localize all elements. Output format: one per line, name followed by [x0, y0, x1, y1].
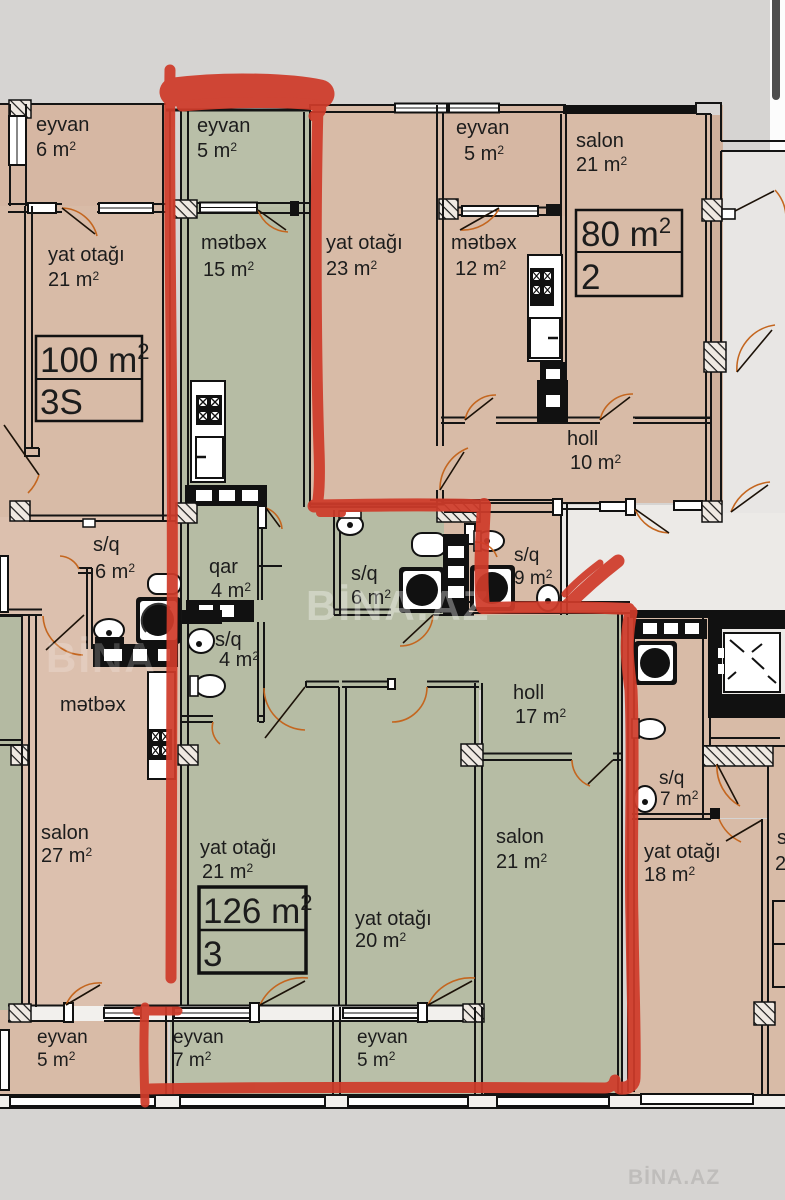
svg-text:s/q: s/q [514, 545, 539, 566]
svg-text:3S: 3S [40, 383, 83, 422]
svg-text:2: 2 [581, 258, 600, 297]
svg-text:eyvan: eyvan [37, 1027, 88, 1048]
svg-text:21 m2: 21 m2 [496, 851, 547, 873]
svg-text:20 m2: 20 m2 [355, 930, 406, 952]
svg-text:21 m2: 21 m2 [48, 269, 99, 291]
svg-text:80 m2: 80 m2 [581, 213, 671, 254]
svg-text:yat otağı: yat otağı [48, 244, 125, 266]
svg-text:holl: holl [513, 682, 544, 704]
svg-text:yat otağı: yat otağı [326, 232, 403, 254]
svg-text:s/q: s/q [659, 768, 684, 789]
svg-text:100 m2: 100 m2 [40, 339, 150, 380]
svg-text:mətbəx: mətbəx [60, 694, 126, 716]
svg-text:mətbəx: mətbəx [451, 232, 517, 254]
svg-text:yat otağı: yat otağı [644, 841, 721, 863]
svg-text:salon: salon [496, 826, 544, 848]
svg-text:salon: salon [41, 822, 89, 844]
svg-text:mətbəx: mətbəx [201, 232, 267, 254]
svg-text:eyvan: eyvan [357, 1027, 408, 1048]
svg-text:s/q: s/q [93, 534, 120, 556]
svg-text:21 m2: 21 m2 [202, 861, 253, 883]
svg-text:12 m2: 12 m2 [455, 258, 506, 280]
svg-text:21 m2: 21 m2 [576, 154, 627, 176]
svg-text:BİNA.AZ: BİNA.AZ [306, 582, 490, 629]
svg-text:10 m2: 10 m2 [570, 452, 621, 474]
svg-text:s/q: s/q [215, 629, 242, 651]
svg-text:126 m2: 126 m2 [203, 890, 313, 931]
svg-text:yat otağı: yat otağı [355, 908, 432, 930]
svg-text:eyvan: eyvan [36, 114, 89, 136]
svg-text:2: 2 [775, 853, 785, 875]
svg-text:15 m2: 15 m2 [203, 259, 254, 281]
svg-text:s: s [777, 827, 785, 849]
svg-text:qar: qar [209, 556, 238, 578]
svg-text:27 m2: 27 m2 [41, 845, 92, 867]
svg-text:eyvan: eyvan [197, 115, 250, 137]
svg-text:23 m2: 23 m2 [326, 258, 377, 280]
svg-text:3: 3 [203, 935, 222, 974]
svg-text:BİNA.AZ: BİNA.AZ [628, 1166, 720, 1189]
svg-text:eyvan: eyvan [456, 117, 509, 139]
svg-text:eyvan: eyvan [173, 1027, 224, 1048]
svg-text:yat otağı: yat otağı [200, 837, 277, 859]
svg-text:17 m2: 17 m2 [515, 706, 566, 728]
svg-text:BİNA: BİNA [46, 634, 157, 681]
svg-text:salon: salon [576, 130, 624, 152]
svg-text:18 m2: 18 m2 [644, 864, 695, 886]
svg-text:holl: holl [567, 428, 598, 450]
